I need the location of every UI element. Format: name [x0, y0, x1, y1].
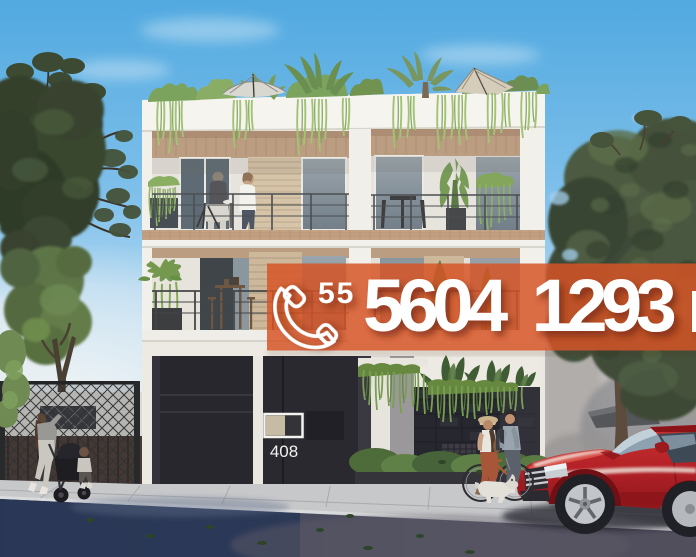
- svg-text:5604 1293: 5604 1293: [363, 264, 675, 347]
- svg-text:408: 408: [270, 442, 298, 461]
- svg-text:55: 55: [318, 277, 355, 310]
